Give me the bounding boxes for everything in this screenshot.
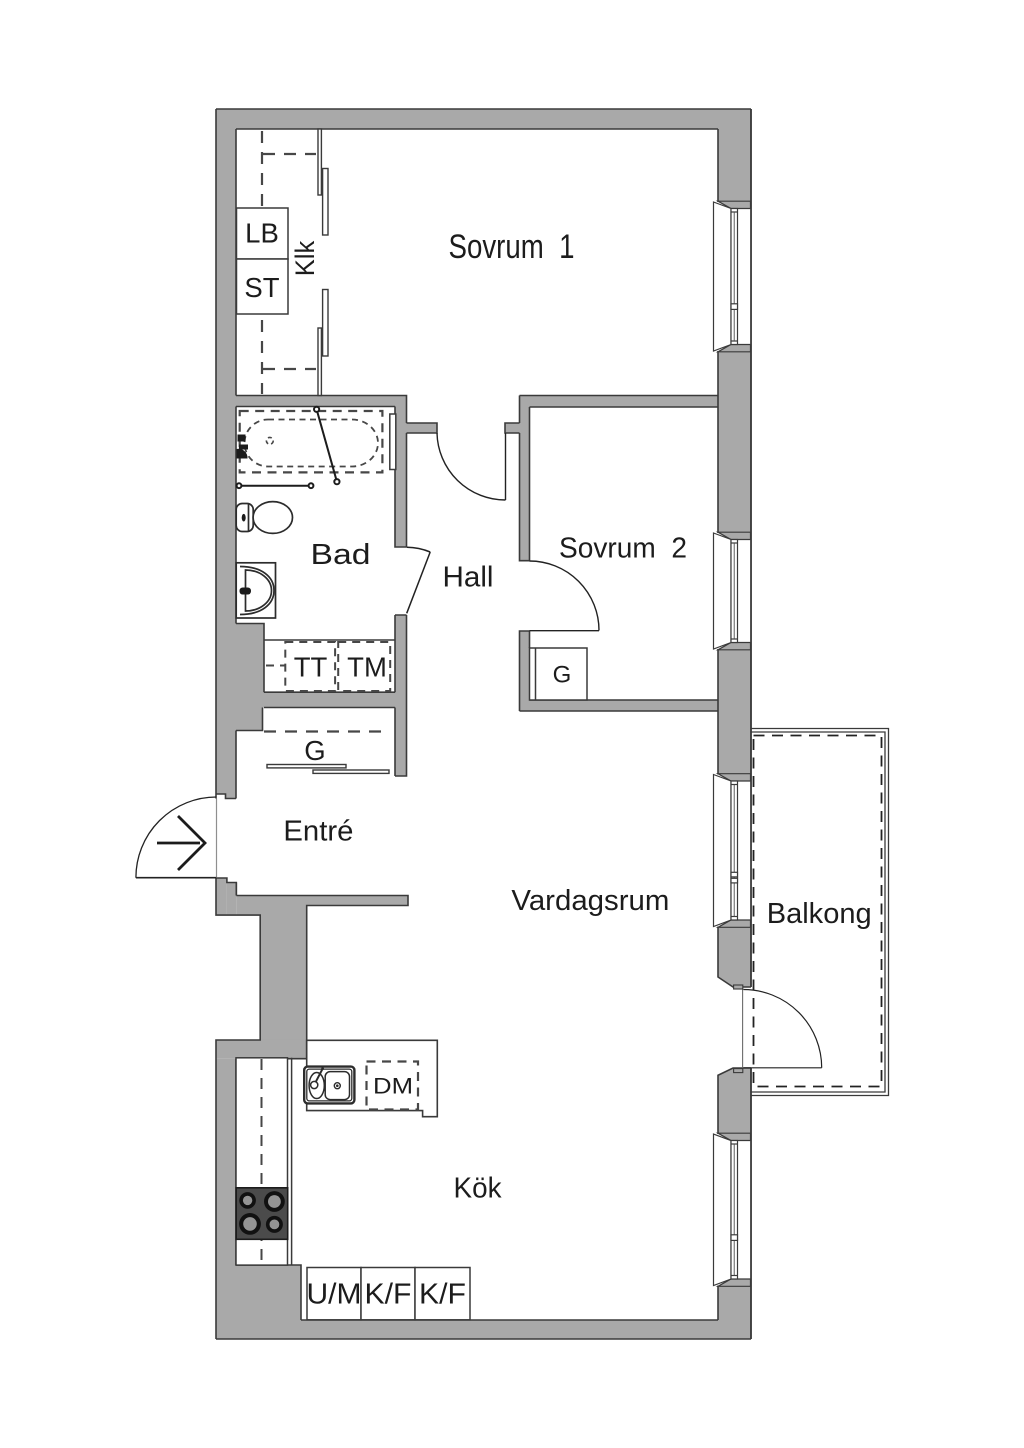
svg-text:Entré: Entré: [283, 816, 353, 848]
svg-text:Sovrum 2: Sovrum 2: [559, 532, 687, 564]
svg-text:DM: DM: [373, 1074, 413, 1099]
svg-text:K/F: K/F: [419, 1278, 466, 1310]
svg-text:Sovrum 1: Sovrum 1: [449, 228, 575, 266]
svg-text:Balkong: Balkong: [767, 898, 872, 930]
svg-text:Kök: Kök: [454, 1173, 502, 1205]
svg-text:Vardagsrum: Vardagsrum: [511, 885, 669, 917]
svg-text:Hall: Hall: [443, 562, 494, 594]
svg-text:TT: TT: [294, 652, 328, 683]
svg-text:TM: TM: [347, 652, 387, 683]
svg-text:Klk: Klk: [290, 240, 320, 276]
svg-text:G: G: [553, 662, 572, 689]
svg-text:ST: ST: [244, 272, 279, 303]
svg-text:U/M: U/M: [307, 1278, 362, 1310]
svg-text:LB: LB: [245, 218, 279, 249]
svg-text:Bad: Bad: [311, 539, 371, 571]
svg-text:G: G: [304, 735, 325, 766]
svg-text:K/F: K/F: [365, 1278, 412, 1310]
